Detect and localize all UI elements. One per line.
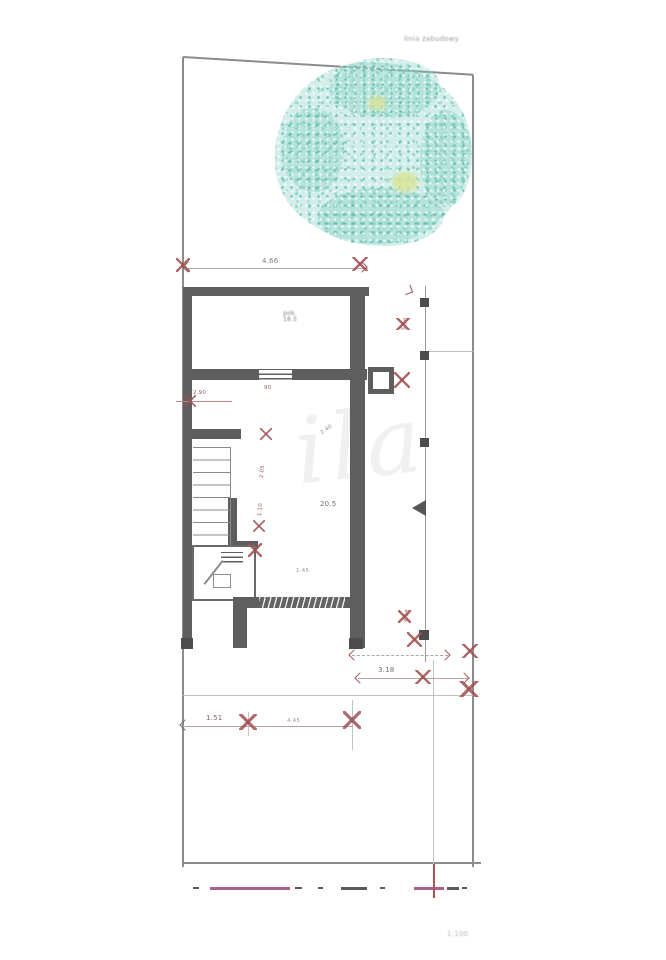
dim-x-mark (398, 610, 411, 623)
dim-x-mark (253, 520, 265, 532)
dim-x-mark (394, 372, 410, 388)
dim-line-bottom (183, 726, 353, 727)
dim-arrow (354, 672, 365, 683)
wall-end-cap (349, 638, 363, 649)
window-terrace-icon (259, 597, 345, 608)
wall-mid-right (292, 369, 367, 380)
dim-label-bottom-a: 1.51 (206, 715, 222, 722)
wall-end-cap (181, 638, 193, 649)
room-label-top: pok. 18.5 (283, 311, 297, 324)
dim-x-mark (396, 318, 410, 330)
road-dash (414, 887, 444, 890)
tree-canopy-lobe (330, 58, 440, 118)
dim-x-mark (176, 258, 190, 272)
road-dash (193, 887, 199, 889)
window-mid-icon (259, 369, 292, 380)
tree-highlight (368, 96, 386, 110)
road-dash (380, 887, 385, 889)
room-label-main: 20.5 (320, 501, 336, 508)
room-area: 18.5 (283, 316, 297, 323)
tree-canopy-lobe (420, 110, 472, 206)
dim-x-mark (352, 257, 368, 271)
chimney (368, 367, 394, 394)
dim-line-terrace (358, 678, 468, 679)
boundary-note: linia zabudowy (404, 36, 459, 43)
fence-flag-marker (412, 500, 426, 516)
fixture (213, 574, 231, 588)
road-dash (341, 887, 367, 890)
dim-x-mark (343, 711, 361, 729)
dim-x-mark (260, 428, 272, 440)
road-dash (295, 887, 302, 889)
dim-label-top: 4.66 (262, 258, 278, 265)
fence-rail (425, 351, 473, 352)
dim-x-mark (248, 543, 262, 557)
dim-line-top (188, 268, 368, 269)
dim-x-mark (407, 632, 422, 647)
plot-boundary-right (472, 75, 474, 867)
dim-label-bottom-b: 4.45 (287, 719, 300, 725)
site-plan-sheet: linia zabudowy 1:100 ila po (0, 0, 666, 960)
dim-label-terrace: 3.18 (378, 667, 394, 674)
terrace-stub-left (233, 597, 247, 648)
wall-bottom-right (345, 597, 363, 608)
tree-highlight (392, 172, 418, 192)
wall-top (183, 287, 369, 296)
road-dash (318, 887, 323, 889)
dim-label-chain: 2.05 (260, 465, 267, 478)
survey-mark-line (433, 864, 435, 898)
scale-note: 1:100 (447, 931, 468, 938)
dim-x-mark (184, 395, 196, 407)
dim-x-mark (461, 644, 479, 658)
dim-dash-terrace (352, 655, 448, 656)
stair-stringer (230, 447, 231, 547)
utility-window-icon (221, 552, 243, 564)
room-label-utility: 1.45 (296, 569, 309, 575)
plot-boundary-bottom (183, 862, 481, 864)
road-dash (462, 887, 467, 889)
dim-arrow (403, 285, 413, 295)
tree-canopy-lobe (318, 188, 444, 246)
tree-canopy-lobe (282, 108, 344, 192)
road-dash (210, 887, 290, 890)
wall-right (350, 287, 365, 648)
wall-left (183, 287, 192, 648)
dim-x-mark (415, 670, 431, 684)
wall-mid-left (183, 369, 259, 380)
road-dash (447, 887, 459, 890)
dim-x-mark (459, 681, 479, 697)
dim-arrow (348, 649, 359, 660)
fence-post (420, 298, 429, 307)
wall-interior-stub (183, 429, 241, 439)
dim-x-mark (239, 714, 257, 730)
terrace-ground-line (183, 695, 473, 696)
dim-label-window: 90 (264, 386, 271, 392)
dim-arrow (439, 649, 450, 660)
fence-post (420, 351, 429, 360)
stairs (193, 447, 230, 547)
dim-label-chain: 1.10 (258, 503, 265, 516)
